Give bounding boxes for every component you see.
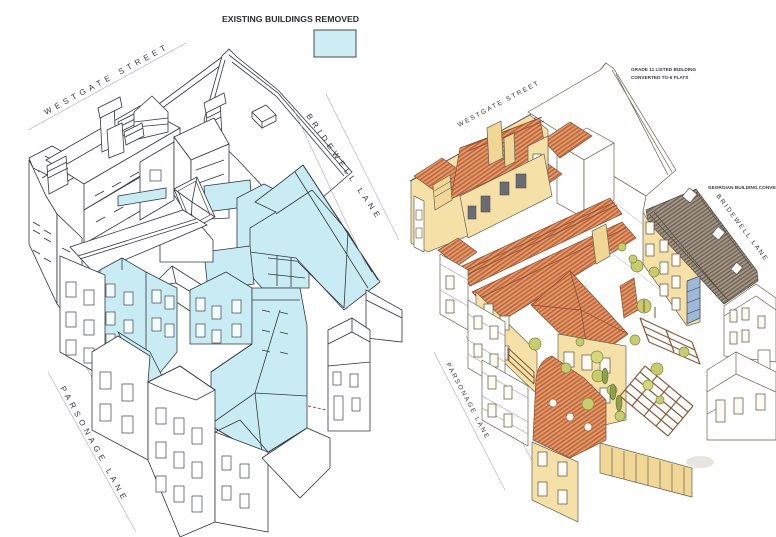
- svg-text:GEORGIAN BUILDING CONVERS: GEORGIAN BUILDING CONVERS: [708, 185, 776, 190]
- svg-text:GRADE 11 LISTED BUILDING: GRADE 11 LISTED BUILDING: [631, 67, 696, 72]
- svg-text:CONVERTED TO-6 FLATS: CONVERTED TO-6 FLATS: [631, 75, 688, 80]
- svg-text:EXISTING BUILDINGS REMOVED: EXISTING BUILDINGS REMOVED: [222, 14, 359, 24]
